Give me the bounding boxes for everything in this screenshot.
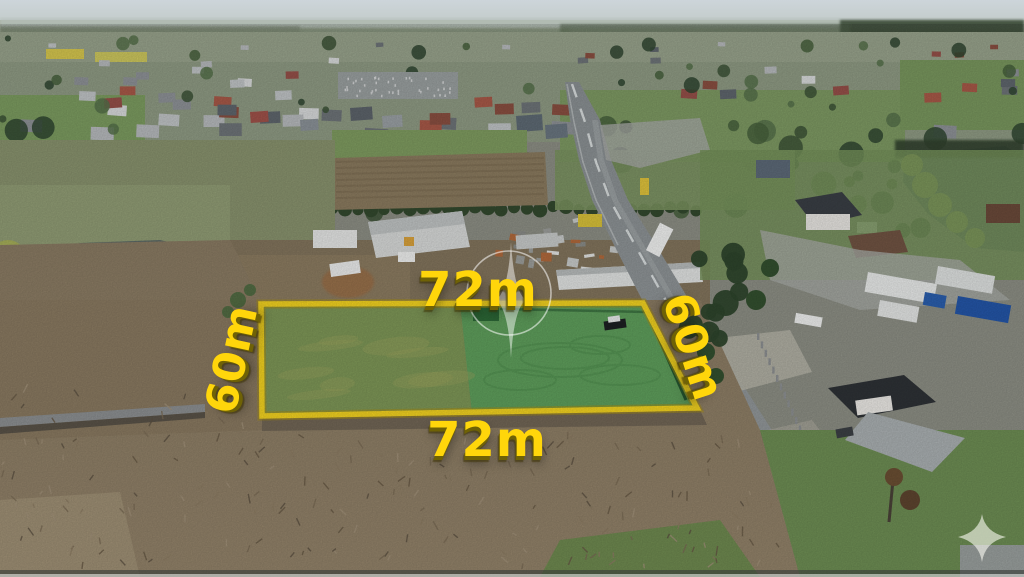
bottom-dark-strip	[0, 570, 1024, 574]
dimension-label-top: 72m	[418, 262, 538, 318]
dimension-label-bottom: 72m	[427, 412, 547, 468]
aerial-plot-photo: 72m 72m 60m 60m	[0, 0, 1024, 577]
